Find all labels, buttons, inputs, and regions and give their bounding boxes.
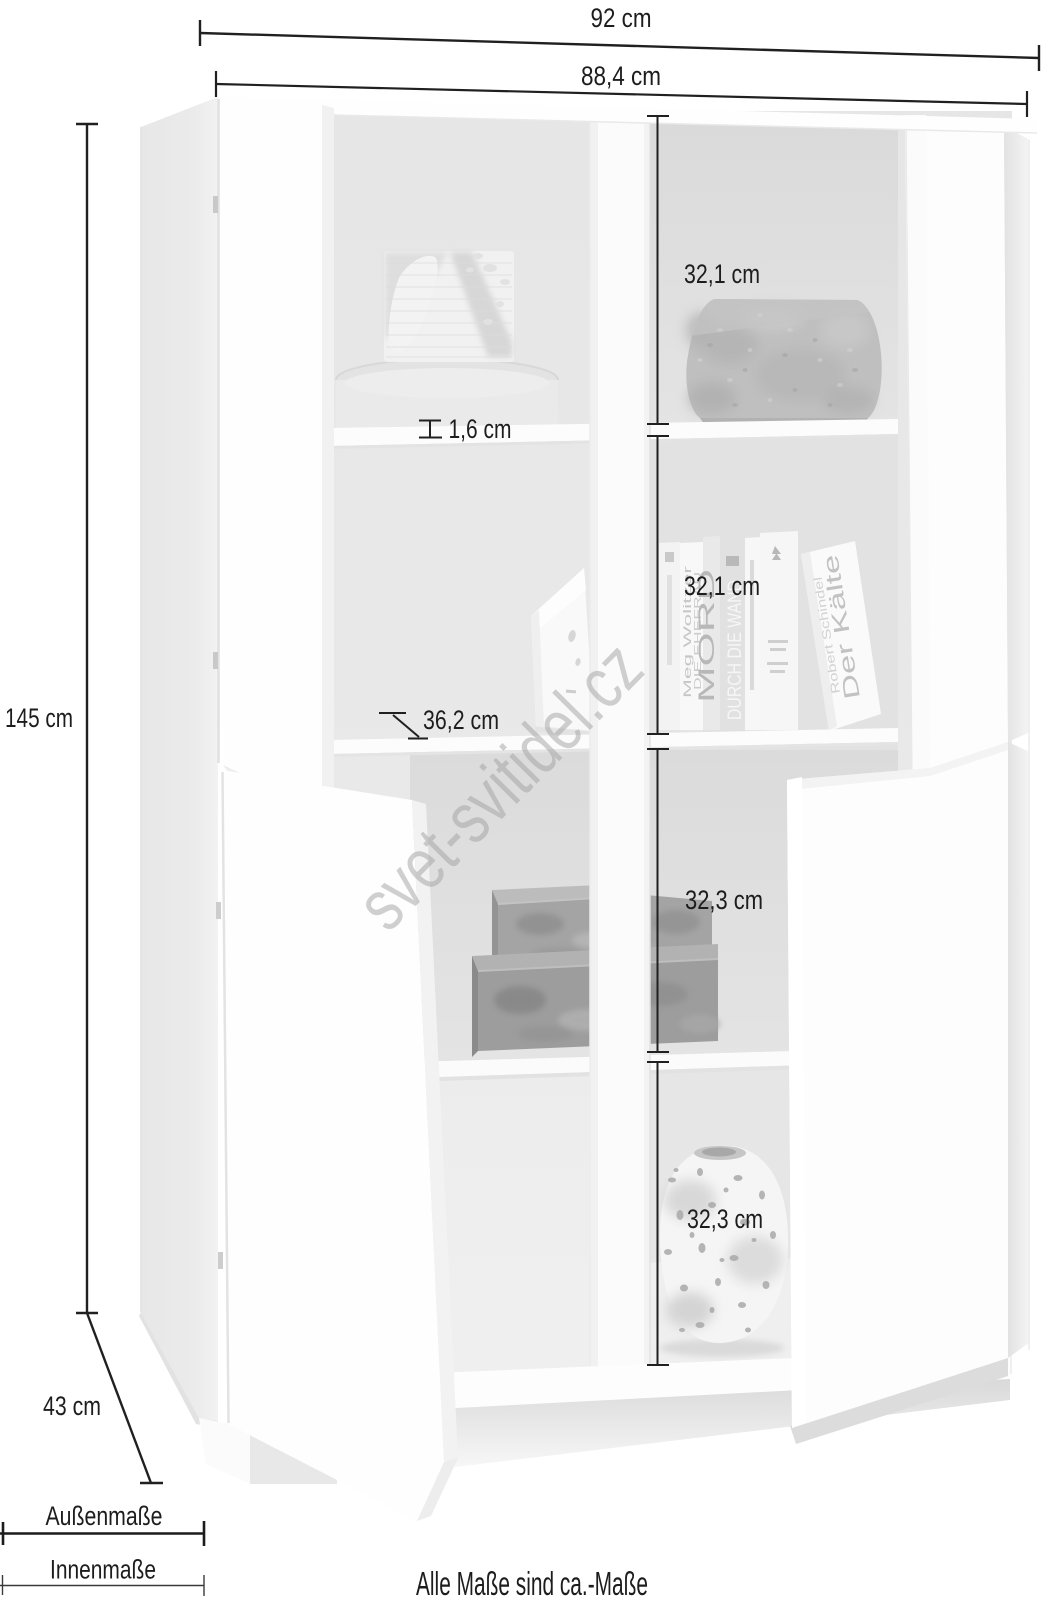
svg-text:Alle Maße sind ca.-Maße: Alle Maße sind ca.-Maße	[416, 1565, 648, 1600]
svg-text:1,6 cm: 1,6 cm	[449, 414, 512, 444]
svg-text:32,1 cm: 32,1 cm	[684, 571, 760, 601]
svg-text:43 cm: 43 cm	[43, 1391, 101, 1421]
svg-text:Innenmaße: Innenmaße	[50, 1555, 156, 1585]
svg-text:36,2 cm: 36,2 cm	[423, 705, 499, 735]
svg-text:32,3 cm: 32,3 cm	[687, 1204, 763, 1234]
svg-text:32,1 cm: 32,1 cm	[684, 259, 760, 289]
svg-text:145 cm: 145 cm	[5, 703, 73, 733]
svg-text:92 cm: 92 cm	[591, 3, 652, 33]
svg-text:32,3 cm: 32,3 cm	[685, 885, 763, 915]
svg-text:88,4 cm: 88,4 cm	[581, 61, 661, 91]
svg-text:DURCH DIE WAND: DURCH DIE WAND	[725, 580, 746, 720]
svg-text:Außenmaße: Außenmaße	[46, 1501, 163, 1531]
